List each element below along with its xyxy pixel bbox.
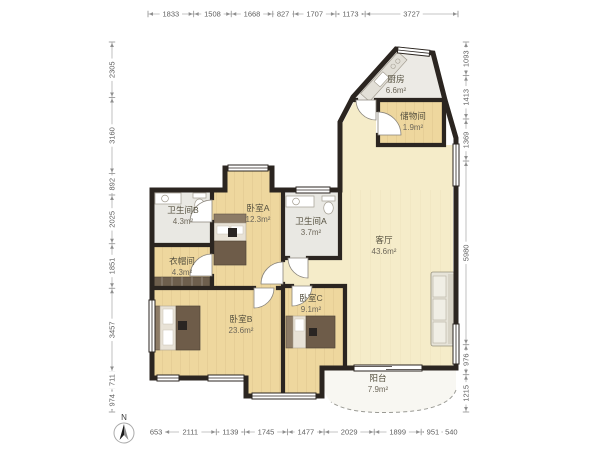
hall-floor-entry — [376, 145, 453, 190]
dimension-value: 1477 — [297, 428, 314, 437]
dimension-value: 1745 — [258, 428, 275, 437]
dimension-value: 1833 — [162, 10, 179, 19]
window-bath-a — [296, 187, 330, 193]
dimension-value: 1707 — [306, 10, 323, 19]
room-area: 7.9m² — [368, 385, 389, 394]
dimension-value: 951 — [427, 428, 440, 437]
sofa-icon — [431, 272, 455, 346]
window-living-right-1 — [453, 144, 459, 186]
dimension-value: 3457 — [108, 322, 117, 339]
room-name: 卧室A — [247, 202, 270, 213]
dimension-value: 3160 — [108, 127, 117, 144]
dimension-value: 1851 — [108, 258, 117, 275]
dimension-line-left: 23053160892202518513457711974 — [108, 42, 117, 412]
room-name: 客厅 — [375, 234, 393, 245]
window-bedroom-b-bottom-1 — [157, 375, 179, 381]
room-name: 卫生间B — [167, 204, 199, 215]
compass-north-label: N — [121, 413, 127, 422]
balcony-sliding-door — [354, 365, 422, 371]
room-area: 12.3m² — [246, 215, 271, 224]
dimension-value: 1093 — [462, 50, 471, 67]
bed-icon-bedroom-a — [214, 214, 246, 265]
room-area: 4.3m² — [173, 217, 194, 226]
dimension-value: 1173 — [342, 10, 358, 19]
room-area: 9.1m² — [301, 305, 322, 314]
dimension-value: 1139 — [222, 428, 238, 437]
room-name: 衣帽间 — [169, 255, 195, 266]
room-name: 卧室B — [230, 313, 253, 324]
dimension-value: 1369 — [462, 132, 471, 149]
dimension-value: 3727 — [403, 10, 420, 19]
room-area: 6.6m² — [386, 86, 407, 95]
dimension-value: 976 — [462, 353, 471, 366]
dimension-value: 974 — [108, 394, 117, 407]
dimension-value: 2029 — [341, 428, 358, 437]
window-bedroom-b-bottom-2 — [208, 375, 244, 381]
dimension-value: 2025 — [108, 211, 117, 228]
room-name: 卧室C — [299, 292, 322, 303]
room-floor-balcony — [322, 368, 456, 413]
toilet-icon — [324, 202, 334, 214]
window-living-right-2 — [453, 324, 459, 364]
window-bedroom-b-left — [149, 300, 155, 352]
room-name: 厨房 — [387, 73, 404, 84]
window-bay-bedroom-a — [228, 165, 268, 171]
dimension-value: 711 — [108, 374, 117, 386]
dimension-value: 1508 — [204, 10, 221, 19]
room-name: 储物间 — [400, 110, 426, 121]
dimension-value: 540 — [445, 428, 458, 437]
room-area: 1.9m² — [403, 123, 424, 132]
dimension-value: 2305 — [108, 61, 117, 78]
bed-icon-bedroom-c — [286, 316, 335, 348]
window-bedroom-c-bottom — [252, 393, 316, 399]
dimension-value: 1215 — [462, 385, 471, 402]
dimension-value: 1668 — [244, 10, 261, 19]
room-name: 卫生间A — [295, 215, 327, 226]
dimension-value: 892 — [108, 178, 117, 191]
room-area: 4.3m² — [172, 268, 193, 277]
dimension-value: 1899 — [389, 428, 406, 437]
bed-icon-bedroom-b — [152, 306, 200, 350]
room-area: 3.7m² — [301, 228, 322, 237]
dimension-line-bottom: 653211111391745147720291899951540 — [147, 428, 460, 437]
room-area: 23.6m² — [229, 326, 254, 335]
dimension-value: 1413 — [462, 89, 471, 106]
room-area: 43.6m² — [372, 247, 397, 256]
dimension-value: 5980 — [462, 245, 471, 262]
dimension-value: 827 — [277, 10, 290, 19]
floor-plan-canvas: 厨房6.6m²储物间1.9m²卫生间B4.3m²卧室A12.3m²卫生间A3.7… — [0, 0, 600, 450]
dimension-value: 2111 — [182, 428, 198, 437]
dimension-line-top: 183315081668827170711733727 — [148, 10, 458, 19]
room-name: 阳台 — [369, 372, 386, 383]
dimension-value: 653 — [150, 428, 163, 437]
dimension-line-right: 10931413136959809761215 — [462, 42, 471, 412]
floor-plan-image: 厨房6.6m²储物间1.9m²卫生间B4.3m²卧室A12.3m²卫生间A3.7… — [0, 0, 600, 450]
compass: N — [114, 413, 134, 443]
